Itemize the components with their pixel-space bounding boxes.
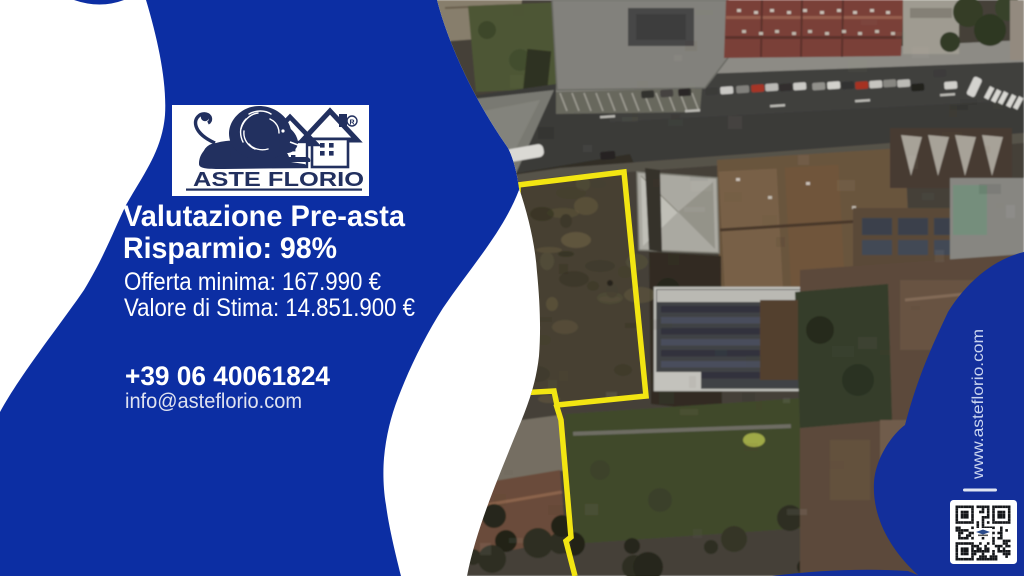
svg-text:Valore di Stima: 14.851.900 €: Valore di Stima: 14.851.900 €	[124, 294, 415, 322]
svg-text:ASTE FLORIO: ASTE FLORIO	[193, 168, 364, 191]
svg-text:Offerta minima: 167.990 €: Offerta minima: 167.990 €	[124, 268, 381, 296]
svg-text:www.asteflorio.com: www.asteflorio.com	[970, 329, 987, 480]
svg-text:+39 06 40061824: +39 06 40061824	[125, 361, 330, 391]
svg-text:R: R	[349, 120, 354, 127]
svg-text:info@asteflorio.com: info@asteflorio.com	[125, 389, 302, 413]
svg-text:Valutazione Pre-asta: Valutazione Pre-asta	[123, 200, 405, 233]
svg-text:Risparmio: 98%: Risparmio: 98%	[123, 232, 337, 265]
